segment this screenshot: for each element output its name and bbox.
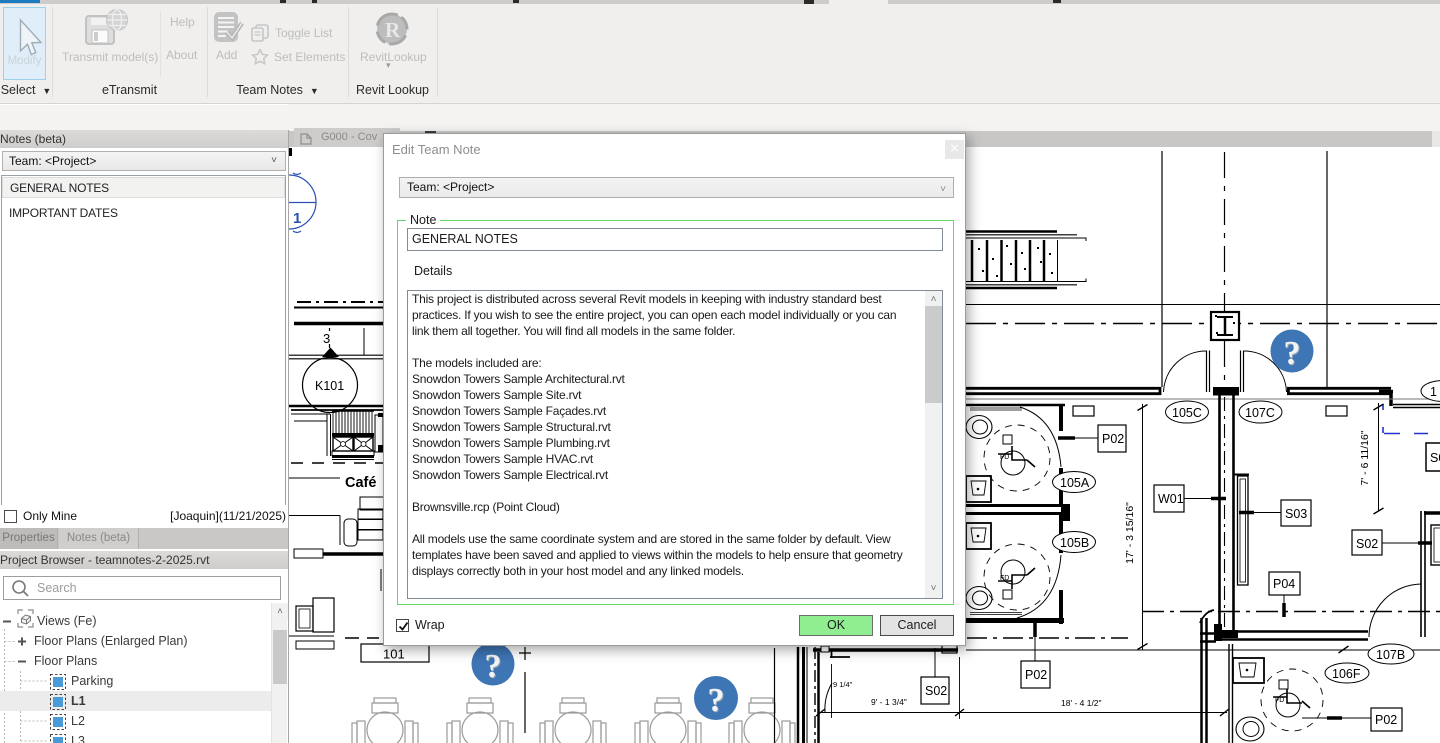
svg-text:106F: 106F: [1332, 667, 1361, 681]
svg-text:?: ?: [708, 682, 725, 719]
svg-text:107C: 107C: [1245, 406, 1275, 420]
svg-text:Café: Café: [345, 475, 376, 491]
svg-text:107B: 107B: [1376, 648, 1405, 662]
svg-text:105C: 105C: [1172, 406, 1202, 420]
svg-text:W01: W01: [1158, 492, 1184, 506]
svg-text:101: 101: [383, 647, 405, 662]
svg-text:FD: FD: [1275, 697, 1284, 704]
svg-text:P02: P02: [1375, 713, 1397, 727]
svg-text:1: 1: [1430, 385, 1437, 399]
svg-text:105A: 105A: [1060, 476, 1090, 490]
svg-text:FD: FD: [1000, 575, 1009, 582]
svg-text:3: 3: [323, 331, 330, 346]
svg-text:K101: K101: [315, 379, 344, 393]
svg-text:P02: P02: [1102, 432, 1124, 446]
svg-text:?: ?: [1284, 335, 1301, 372]
svg-text:S02: S02: [925, 684, 947, 698]
svg-text:17' - 3 15/16": 17' - 3 15/16": [1124, 502, 1136, 564]
svg-text:FD: FD: [1000, 454, 1009, 461]
svg-text:18' - 4 1/2": 18' - 4 1/2": [1061, 698, 1102, 708]
svg-text:S03: S03: [1285, 507, 1307, 521]
svg-text:7' - 6 11/16": 7' - 6 11/16": [1359, 430, 1371, 485]
svg-text:9 1/4": 9 1/4": [833, 680, 853, 689]
svg-text:9' - 1 3/4": 9' - 1 3/4": [871, 697, 907, 707]
svg-text:?: ?: [485, 648, 502, 685]
svg-text:P04: P04: [1273, 577, 1295, 591]
svg-text:S0: S0: [1430, 451, 1440, 465]
svg-text:105B: 105B: [1060, 536, 1089, 550]
svg-text:S02: S02: [1356, 537, 1378, 551]
svg-text:1: 1: [293, 210, 301, 227]
svg-text:R: R: [385, 18, 401, 42]
svg-text:P02: P02: [1025, 668, 1047, 682]
